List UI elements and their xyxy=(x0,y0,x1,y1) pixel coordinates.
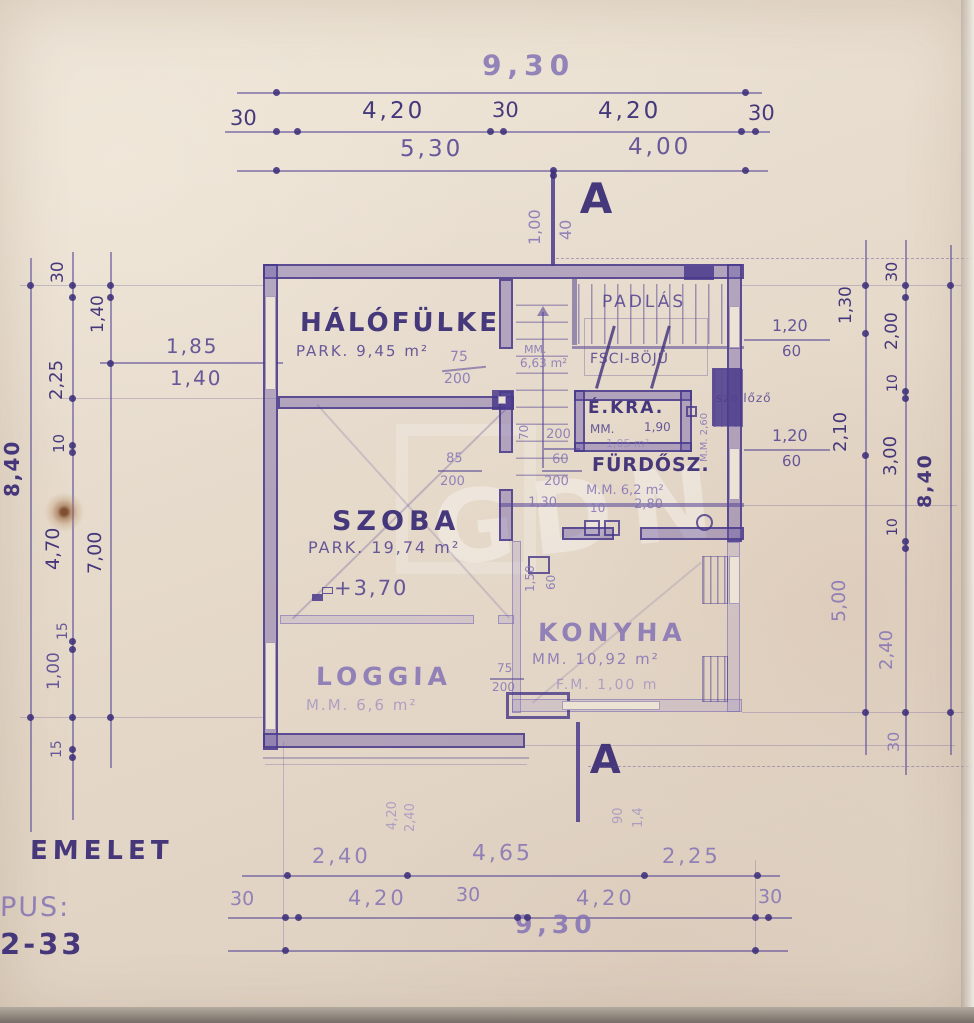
dim-dot xyxy=(107,714,114,721)
flue-block xyxy=(684,266,714,280)
dim-line xyxy=(237,92,762,94)
section-label-bottom: A xyxy=(590,740,622,780)
door-dim: 75 xyxy=(450,350,468,364)
guide-line xyxy=(742,712,964,713)
level-symbol xyxy=(312,594,323,601)
pillar-core xyxy=(498,396,506,404)
section-label-top: A xyxy=(580,178,613,220)
dim-dot xyxy=(752,947,759,954)
dim-dot xyxy=(524,914,531,921)
dim-line xyxy=(744,339,830,341)
dim-dot xyxy=(641,872,648,879)
dim-stack: 200 xyxy=(546,428,571,441)
dim-dot xyxy=(902,709,909,716)
dim-right: 5,00 xyxy=(830,580,849,622)
dim-bottom: 2,40 xyxy=(312,846,371,867)
door-dim: 200 xyxy=(444,372,471,386)
dim-top: 30 xyxy=(492,100,519,121)
dim-dot xyxy=(69,449,76,456)
dim-dot xyxy=(902,538,909,545)
dim-top: 30 xyxy=(748,103,775,124)
dim-dot xyxy=(69,646,76,653)
dim-dot xyxy=(69,395,76,402)
dim-fr: 1,20 xyxy=(772,318,808,334)
dim-fr: 60 xyxy=(782,454,801,469)
dim-line xyxy=(242,875,780,877)
dim-dot xyxy=(295,914,302,921)
room-szoba-area: PARK. 19,74 m² xyxy=(308,540,461,556)
window-right-2 xyxy=(729,448,740,500)
dim-dot xyxy=(742,89,749,96)
wall-center-vert xyxy=(499,489,513,541)
dim-left: 10 xyxy=(52,434,67,453)
dim-left: 4,70 xyxy=(44,528,63,570)
window-kitchen-right xyxy=(729,556,740,604)
blueprint-page: GDN 9,30 30 4,20 30 4,20 30 5,30 4,00 A … xyxy=(0,0,974,1023)
wc-fixture xyxy=(696,514,713,531)
dim-left: 15 xyxy=(50,740,64,758)
door-dim: 75 xyxy=(497,662,512,674)
dim-dot xyxy=(514,914,521,921)
dim-dot xyxy=(487,128,494,135)
dim-dot xyxy=(752,914,759,921)
vent-box xyxy=(686,406,697,417)
room-loggia-area: M.M. 6,6 m² xyxy=(306,698,418,713)
wall-halofulke-szoba xyxy=(278,396,514,409)
dim-dot xyxy=(273,89,280,96)
room-konyha-name: KONYHA xyxy=(538,620,687,645)
dim-left-outer: 8,40 xyxy=(2,440,22,497)
window-left-lower xyxy=(265,642,276,730)
type-label: PUS: xyxy=(0,894,71,921)
dim-dot xyxy=(742,167,749,174)
dim-bottom: 30 xyxy=(758,888,783,907)
dim-dot xyxy=(27,714,34,721)
level-mark: +3,70 xyxy=(334,578,409,599)
dim-line xyxy=(225,131,770,133)
radiator xyxy=(702,656,728,702)
dim-dot xyxy=(738,128,745,135)
dim-window: 1,40 xyxy=(170,368,223,388)
dim-top-total: 9,30 xyxy=(482,52,576,80)
dim-dot xyxy=(69,714,76,721)
room-halofulke-name: HÁLÓFÜLKE xyxy=(300,310,500,336)
dim-window: 1,85 xyxy=(166,336,219,356)
bath-fixture xyxy=(584,520,600,536)
dim-right: 1,30 xyxy=(838,286,855,324)
room-furdo-name: FÜRDŐSZ. xyxy=(592,456,710,475)
dim-top: 30 xyxy=(230,108,257,129)
dim-dot xyxy=(404,872,411,879)
stair-arrow-shaft xyxy=(542,312,544,468)
dim-left: 15 xyxy=(56,622,70,640)
dim-v70: 70 xyxy=(518,425,530,440)
room-loggia-name: LOGGIA xyxy=(316,664,452,689)
dim-dot xyxy=(284,872,291,879)
dim-right: 10 xyxy=(886,374,900,392)
dim-bottom: 4,65 xyxy=(472,843,533,865)
dim-dot xyxy=(752,128,759,135)
loggia-parapet-2 xyxy=(265,764,527,765)
konyha-note: F.M. 1,00 m xyxy=(556,678,659,692)
dim-line xyxy=(950,245,952,755)
dim-line xyxy=(72,252,74,820)
dim-dot xyxy=(69,282,76,289)
dim-bottom: 30 xyxy=(456,886,481,905)
dim-dot xyxy=(947,282,954,289)
room-konyha-area: MM. 10,92 m² xyxy=(532,652,660,667)
section-line-bottom xyxy=(576,722,580,822)
section-dim: 90 xyxy=(612,807,625,824)
dim-dot xyxy=(69,294,76,301)
stair-arrow-head xyxy=(537,306,549,316)
dim-dot xyxy=(754,872,761,879)
dim-line xyxy=(100,362,283,364)
dim-bottom: 30 xyxy=(230,890,255,909)
hall-area: 6,63 m² xyxy=(520,357,567,369)
kamra-mm: MM. xyxy=(590,423,615,435)
dim-left: 1,40 xyxy=(90,295,107,333)
dim-dot xyxy=(69,638,76,645)
dim-dot xyxy=(862,330,869,337)
scan-edge-right xyxy=(961,0,974,1023)
furdo-area: M.M. 6,2 m² xyxy=(586,484,664,497)
dim-dot xyxy=(69,746,76,753)
dim-top: 4,20 xyxy=(598,100,662,123)
dim-dot xyxy=(902,282,909,289)
dim-dot xyxy=(107,360,114,367)
dim-dot xyxy=(550,172,557,179)
dim-w130: 1,30 xyxy=(528,496,557,509)
section-dim: 1,00 xyxy=(527,209,543,245)
door-dim: 85 xyxy=(446,452,463,465)
dim-dot xyxy=(273,167,280,174)
dim-line xyxy=(438,470,482,472)
wall-padlas-edge xyxy=(572,279,577,345)
dim-right-outer: 8,40 xyxy=(916,453,935,508)
dim-right: 3,00 xyxy=(882,436,900,476)
section-dim: 1,4 xyxy=(632,807,645,828)
dim-left: 7,00 xyxy=(86,532,105,574)
window-right xyxy=(729,306,740,348)
dim-dot xyxy=(862,709,869,716)
level-symbol xyxy=(322,587,333,594)
dim-top: 4,20 xyxy=(362,100,426,123)
szellozo-label: szellőző xyxy=(716,392,772,404)
dim-dot xyxy=(862,452,869,459)
dim-dot xyxy=(69,754,76,761)
dim-dot xyxy=(282,947,289,954)
dim-line xyxy=(237,170,768,172)
axis-dashed-line xyxy=(588,766,974,767)
bath-fixture xyxy=(604,520,620,536)
dim-dot xyxy=(282,914,289,921)
guide-line xyxy=(60,398,280,399)
dim-right: 30 xyxy=(884,262,900,282)
guide-line xyxy=(283,742,284,955)
dim-line xyxy=(542,470,582,472)
radiator xyxy=(702,556,728,604)
dim-line xyxy=(228,950,788,952)
wall-center-vert xyxy=(499,279,513,349)
dim-stack: 200 xyxy=(544,475,569,488)
dim-line xyxy=(110,252,112,768)
wall-szoba-loggia xyxy=(498,615,514,624)
kamra-area: 1,05 m² xyxy=(606,438,649,449)
dim-dot xyxy=(947,709,954,716)
dim-right: 10 xyxy=(886,518,900,536)
guide-line xyxy=(20,285,265,286)
dim-dot xyxy=(902,545,909,552)
floor-title: EMELET xyxy=(30,838,174,864)
loggia-parapet xyxy=(263,757,529,759)
section-dim: 2,40 xyxy=(404,803,417,832)
dim-right: 2,40 xyxy=(878,630,896,670)
dim-dot xyxy=(107,282,114,289)
dim-top: 4,00 xyxy=(628,136,692,159)
dim-right: 30 xyxy=(886,732,902,752)
dim-line xyxy=(228,917,792,919)
dim-dot xyxy=(107,294,114,301)
dim-dot xyxy=(500,128,507,135)
room-kamra-name: É.KRA. xyxy=(588,400,665,417)
room-padlas-name: PADLÁS xyxy=(602,294,686,311)
dim-bottom: 4,20 xyxy=(348,888,407,909)
section-line-top xyxy=(551,170,555,266)
dim-dot xyxy=(765,914,772,921)
dim-dot xyxy=(902,388,909,395)
dim-bottom: 4,20 xyxy=(576,888,635,909)
wall-top xyxy=(263,264,744,279)
dim-dot xyxy=(902,395,909,402)
kamra-dim: 1,90 xyxy=(644,421,671,433)
dim-fr: 1,20 xyxy=(772,428,808,444)
guide-line xyxy=(20,717,265,718)
dim-right: 2,10 xyxy=(832,412,850,452)
dim-right: 2,00 xyxy=(884,312,901,350)
scan-edge-bottom xyxy=(0,1007,974,1023)
burn-spot xyxy=(40,492,84,532)
dim-dot xyxy=(862,282,869,289)
dim-line xyxy=(905,240,907,775)
dim-fr: 60 xyxy=(782,344,801,359)
kitchen-dim: 60 xyxy=(545,575,557,590)
wall-szoba-loggia xyxy=(280,615,474,624)
kitchen-dim: 1,50 xyxy=(524,565,536,592)
padlas-stair-label: FSCI-BÖJÜ xyxy=(590,352,669,366)
dim-top: 5,30 xyxy=(400,138,464,161)
dim-line xyxy=(30,258,32,832)
dim-left: 2,25 xyxy=(48,360,66,400)
dim-dot xyxy=(294,128,301,135)
dim-stack: 60 xyxy=(552,453,569,466)
dim-dot xyxy=(273,128,280,135)
door-dim: 200 xyxy=(492,681,515,693)
dim-bottom: 2,25 xyxy=(662,846,721,867)
door-dim: 200 xyxy=(440,475,465,488)
dim-dot xyxy=(27,282,34,289)
furdo-dim: 10 xyxy=(590,502,605,514)
wall-bath-bottom xyxy=(640,527,744,540)
furdo-dim: 2,80 xyxy=(634,498,663,511)
type-number: 2-33 xyxy=(0,930,85,959)
dim-line xyxy=(865,240,867,755)
dim-dot xyxy=(902,294,909,301)
room-szoba-name: SZOBA xyxy=(332,508,461,535)
dim-left: 1,00 xyxy=(46,652,63,690)
hall-mm-label: MM. xyxy=(524,344,547,355)
room-halofulke-area: PARK. 9,45 m² xyxy=(296,344,429,359)
axis-dashed-line xyxy=(556,258,974,259)
wall-loggia-bottom xyxy=(263,733,525,748)
dim-line xyxy=(544,448,580,450)
window-left xyxy=(265,296,276,390)
dim-left: 30 xyxy=(50,261,67,283)
dim-line xyxy=(744,449,830,451)
dim-dot xyxy=(69,442,76,449)
window-kitchen-bottom xyxy=(562,701,660,710)
section-dim: 4,20 xyxy=(386,801,399,830)
section-dim: 40 xyxy=(558,220,574,240)
